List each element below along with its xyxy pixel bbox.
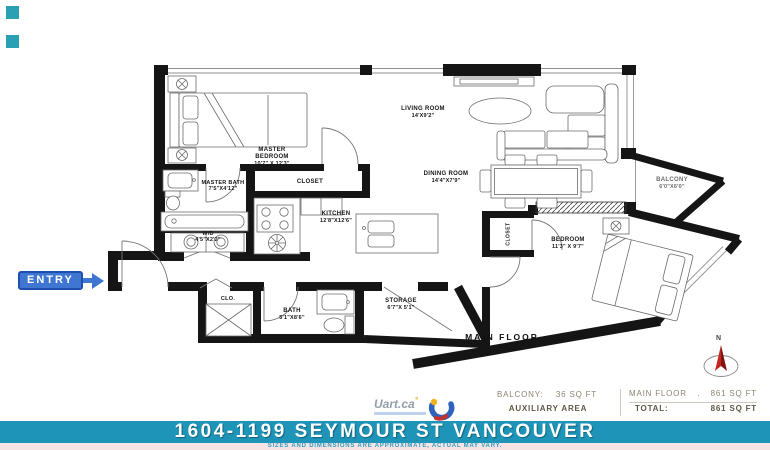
address-title: 1604-1199 SEYMOUR ST VANCOUVER bbox=[175, 421, 596, 443]
room-label-living-room: LIVING ROOM 14'X9'2" bbox=[386, 106, 460, 120]
footer-divider bbox=[620, 389, 621, 416]
logo-tagline bbox=[374, 412, 426, 415]
compass-icon bbox=[704, 345, 738, 377]
floorplan-page: MASTER BEDROOM 10'7" X 12'3" MASTER BATH… bbox=[0, 0, 770, 450]
main-floor-area-label: MAIN FLOOR bbox=[629, 389, 687, 398]
floor-plan-drawing bbox=[0, 0, 770, 450]
address-title-bar: 1604-1199 SEYMOUR ST VANCOUVER bbox=[0, 421, 770, 443]
closet-shelf bbox=[206, 304, 251, 336]
entry-indicator: ENTRY bbox=[18, 271, 104, 290]
room-label-wd: W/D 4'5"X2'2" bbox=[181, 231, 235, 243]
room-label-bedroom-closet: CLOSET bbox=[492, 216, 526, 252]
room-label-master-closet: CLOSET bbox=[275, 179, 345, 186]
logo-text: Uart.ca bbox=[374, 397, 415, 411]
main-floor-label: MAIN FLOOR bbox=[448, 332, 556, 342]
room-label-storage: STORAGE 6'7"X 5'1" bbox=[366, 298, 436, 312]
logo-dot: ° bbox=[415, 396, 418, 405]
balcony-area-label: BALCONY: bbox=[497, 390, 543, 399]
room-label-master-bedroom: MASTER BEDROOM 10'7" X 12'3" bbox=[247, 147, 297, 168]
room-label-master-bath: MASTER BATH 7'5"X4'12" bbox=[201, 180, 245, 192]
total-value: 861 SQ FT bbox=[711, 404, 757, 413]
total-area-row: TOTAL: 861 SQ FT bbox=[635, 404, 757, 413]
entry-label: ENTRY bbox=[18, 271, 83, 290]
disclaimer-strip: SIZES AND DIMENSIONS ARE APPROXIMATE, AC… bbox=[0, 443, 770, 450]
entry-arrow-icon bbox=[92, 273, 104, 289]
room-label-balcony: BALCONY 6'0"X6'0" bbox=[638, 177, 706, 191]
balcony-area-row: BALCONY: 36 SQ FT bbox=[497, 390, 597, 399]
total-rule bbox=[629, 402, 757, 403]
room-label-bath: BATH 5'1"X8'6" bbox=[264, 308, 320, 322]
kitchen-fixtures bbox=[254, 198, 438, 254]
bedroom-bed bbox=[592, 218, 694, 321]
dining-table bbox=[480, 155, 592, 208]
auxiliary-area-label: AUXILIARY AREA bbox=[500, 404, 596, 413]
compass-n-label: N bbox=[716, 335, 721, 342]
balcony-area-value: 36 SQ FT bbox=[556, 390, 597, 399]
entry-arrow-stem bbox=[83, 278, 92, 283]
room-label-bedroom: BEDROOM 11'3" X 9'7" bbox=[526, 237, 610, 251]
bath-fixtures bbox=[317, 290, 354, 334]
living-room-furniture bbox=[454, 77, 618, 163]
room-label-dining-room: DINING ROOM 14'4"X7'9" bbox=[404, 171, 488, 185]
main-floor-area-value: 861 SQ FT bbox=[711, 389, 757, 398]
main-floor-separator: . bbox=[697, 389, 700, 398]
total-label: TOTAL: bbox=[635, 404, 668, 413]
main-floor-area-row: MAIN FLOOR . 861 SQ FT bbox=[629, 389, 757, 398]
room-label-clo: CLO. bbox=[204, 296, 252, 302]
room-label-kitchen: KITCHEN 12'8"X12'6" bbox=[303, 211, 369, 225]
